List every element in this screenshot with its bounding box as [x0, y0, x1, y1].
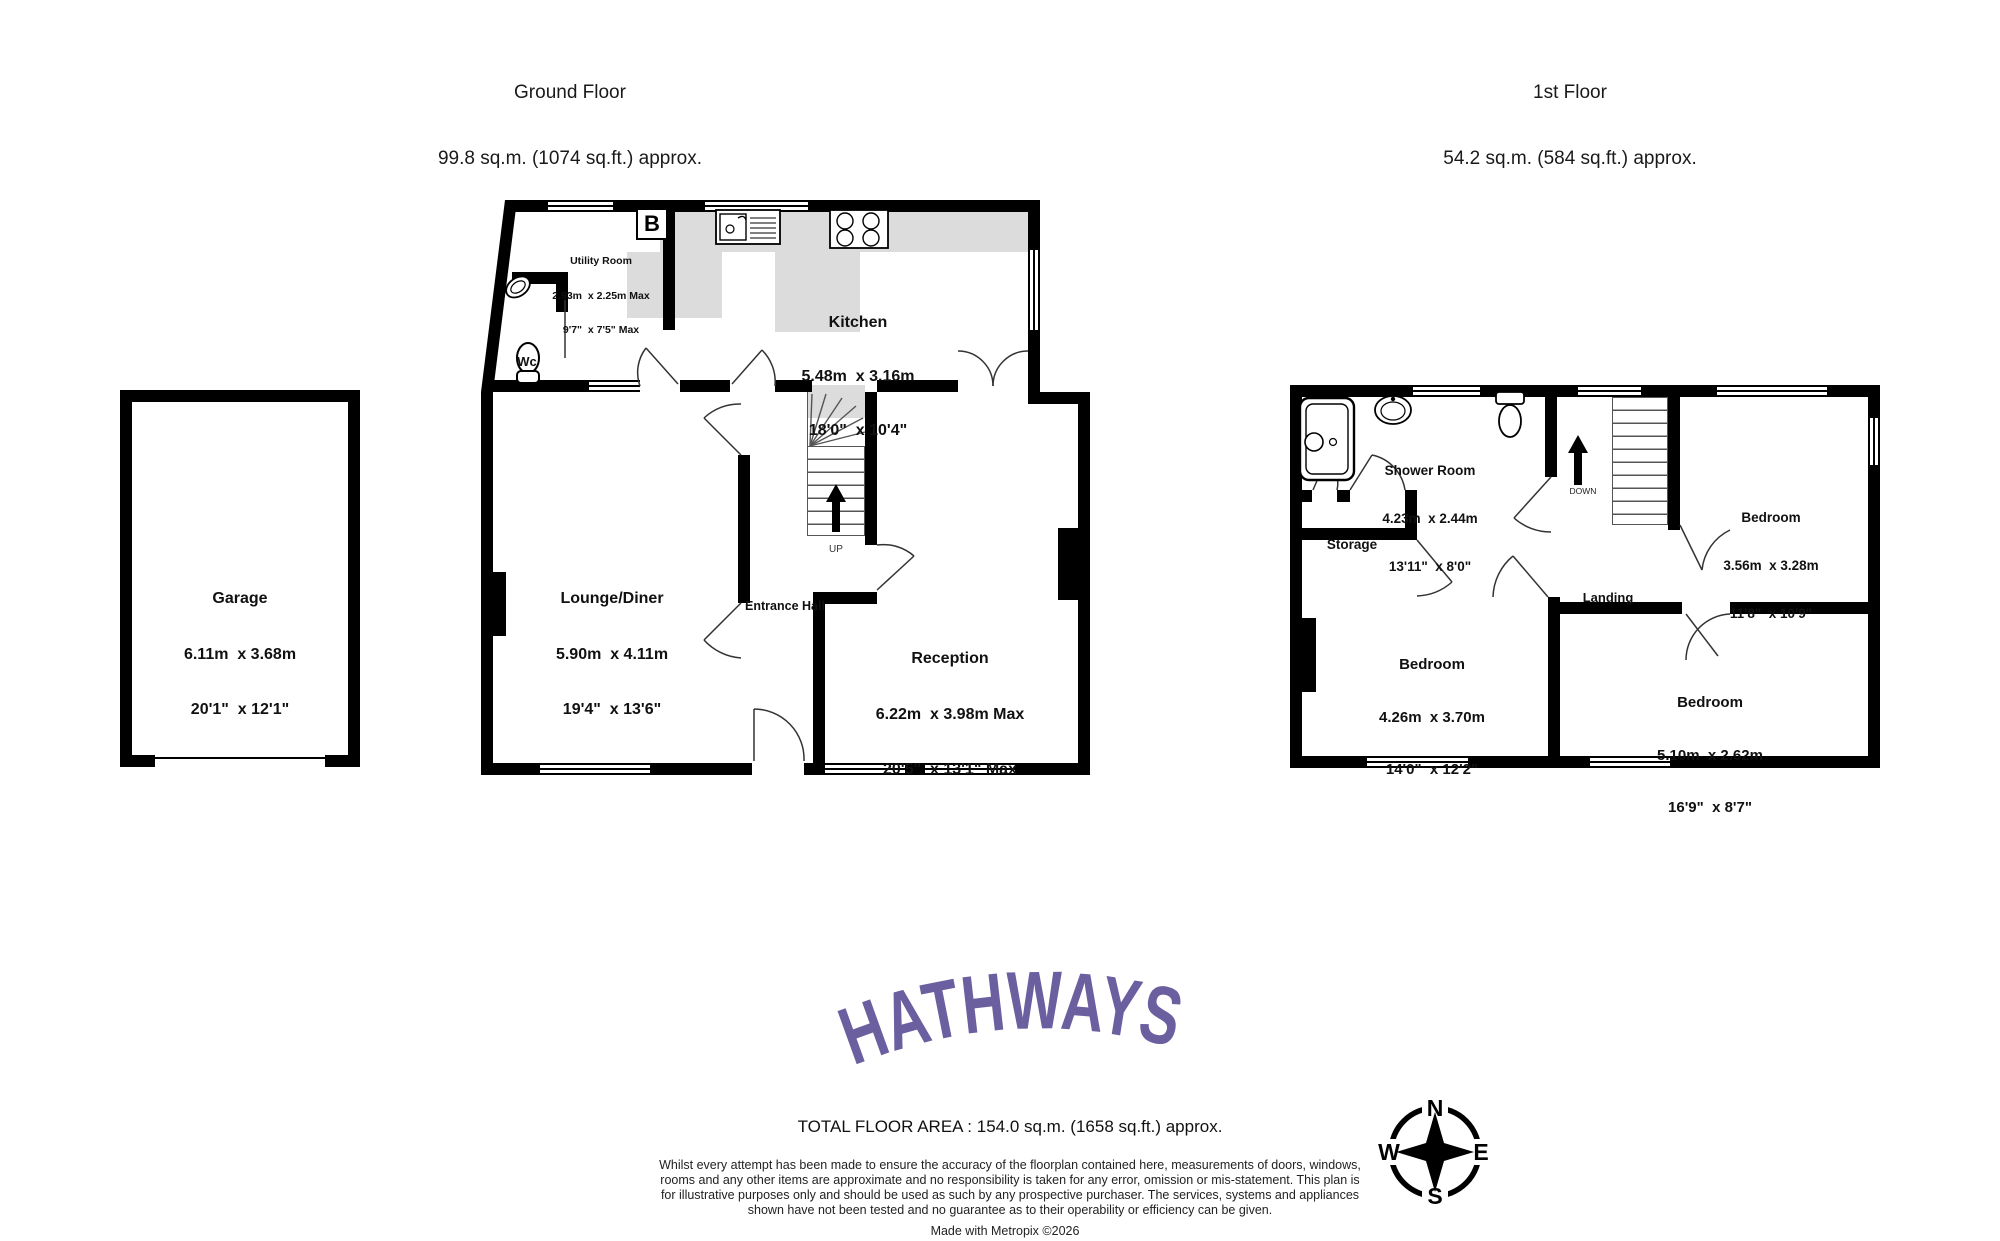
wall [348, 390, 360, 767]
compass: N E S W [1378, 1095, 1492, 1209]
stairs-down-label: DOWN [1553, 486, 1613, 496]
room-label-bedroom-left: Bedroom 4.26m x 3.70m 14'0" x 12'2" [1332, 621, 1532, 814]
window [1028, 250, 1040, 330]
room-name: Bedroom [1332, 656, 1532, 674]
room-label-reception: Reception 6.22m x 3.98m Max 20'5" x 13'1… [850, 613, 1050, 817]
room-dim-metric: 6.22m x 3.98m Max [850, 706, 1050, 725]
wall [1545, 397, 1557, 477]
internal-window [589, 380, 640, 392]
room-dim-metric: 5.90m x 4.11m [512, 646, 712, 665]
room-name: Lounge/Diner [512, 590, 712, 609]
total-floor-area: TOTAL FLOOR AREA : 154.0 sq.m. (1658 sq.… [510, 1117, 1510, 1137]
first-floor-title: 1st Floor [1320, 82, 1820, 104]
window [1578, 385, 1641, 397]
radiator [1058, 528, 1078, 600]
ground-floor-header: Ground Floor 99.8 sq.m. (1074 sq.ft.) ap… [320, 38, 820, 214]
room-label-hall: Entrance Hall [715, 571, 855, 641]
front-door-opening [752, 763, 804, 775]
room-name: Storage [1292, 537, 1412, 552]
compass-w: W [1378, 1139, 1400, 1165]
basin-icon [1375, 396, 1411, 424]
room-dim-imperial: 19'4" x 13'6" [512, 701, 712, 720]
room-dim-imperial: 11'8" x 10'9" [1671, 606, 1871, 622]
garage-door [155, 757, 325, 759]
disclaimer-text: Whilst every attempt has been made to en… [655, 1158, 1365, 1218]
radiator [493, 572, 506, 636]
room-label-lounge: Lounge/Diner 5.90m x 4.11m 19'4" x 13'6" [512, 553, 712, 757]
room-dim-imperial: 18'0" x 10'4" [758, 422, 958, 440]
wall [1078, 392, 1090, 775]
room-dim-imperial: 20'1" x 12'1" [140, 701, 340, 720]
room-dim-metric: 3.56m x 3.28m [1671, 558, 1871, 574]
room-label-garage: Garage 6.11m x 3.68m 20'1" x 12'1" [140, 553, 340, 757]
wall [481, 392, 493, 775]
wall [325, 755, 360, 767]
kitchen-counter [660, 212, 1028, 252]
first-floor-header: 1st Floor 54.2 sq.m. (584 sq.ft.) approx… [1320, 38, 1820, 214]
wall [120, 755, 155, 767]
room-dim-metric: 6.11m x 3.68m [140, 646, 340, 665]
room-dim-imperial: 14'0" x 12'2" [1332, 761, 1532, 779]
window [548, 200, 613, 212]
room-dim-imperial: 16'9" x 8'7" [1610, 799, 1810, 817]
room-name: Bedroom [1610, 694, 1810, 712]
credit-text: Made with Metropix ©2026 [805, 1224, 1205, 1239]
hathways-logo: HATHWAYS [828, 955, 1190, 1082]
room-name: Bedroom [1671, 510, 1871, 526]
wall [1302, 490, 1312, 502]
room-dim-metric: 5.10m x 2.62m [1610, 747, 1810, 765]
room-dim-metric: 5.48m x 3.16m [758, 368, 958, 386]
room-name: Entrance Hall [715, 599, 855, 613]
compass-s: S [1427, 1183, 1442, 1209]
door-opening [640, 380, 680, 392]
stairs-first [1612, 397, 1668, 525]
wall [120, 390, 132, 767]
window [540, 763, 650, 775]
wall [120, 390, 360, 402]
window [1868, 418, 1880, 465]
ground-floor-area: 99.8 sq.m. (1074 sq.ft.) approx. [320, 148, 820, 170]
ground-floor-title: Ground Floor [320, 82, 820, 104]
room-label-storage: Storage [1292, 507, 1412, 582]
room-dim-metric: 4.26m x 3.70m [1332, 709, 1532, 727]
room-name: Garage [140, 590, 340, 609]
room-name: Kitchen [758, 314, 958, 332]
room-label-wc: Wc [497, 324, 557, 399]
room-label-bedroom-top-right: Bedroom 3.56m x 3.28m 11'8" x 10'9" [1671, 478, 1871, 654]
room-label-landing: Landing [1548, 560, 1668, 635]
window [1717, 385, 1827, 397]
room-name: Utility Room [521, 256, 681, 268]
kitchen-counter [675, 252, 722, 318]
floorplan-canvas: Ground Floor 99.8 sq.m. (1074 sq.ft.) ap… [0, 0, 2000, 1241]
room-dim-metric: 2.93m x 2.25m Max [521, 291, 681, 303]
room-name: Landing [1548, 590, 1668, 605]
room-label-bedroom-bottom-right: Bedroom 5.10m x 2.62m 16'9" x 8'7" [1610, 659, 1810, 852]
room-dim-imperial: 20'5" x 13'1" Max [850, 761, 1050, 780]
room-name: Reception [850, 650, 1050, 669]
compass-e: E [1473, 1139, 1488, 1165]
window [705, 200, 808, 212]
room-name: Shower Room [1330, 463, 1530, 479]
window [1413, 385, 1480, 397]
hathways-logo-text: HATHWAYS [828, 955, 1190, 1082]
radiator [1302, 618, 1316, 692]
room-name: Wc [497, 354, 557, 369]
first-floor-area: 54.2 sq.m. (584 sq.ft.) approx. [1320, 148, 1820, 170]
down-arrow [1568, 435, 1588, 485]
stairs-up-label: UP [816, 544, 856, 555]
room-label-kitchen: Kitchen 5.48m x 3.16m 18'0" x 10'4" [758, 278, 958, 476]
